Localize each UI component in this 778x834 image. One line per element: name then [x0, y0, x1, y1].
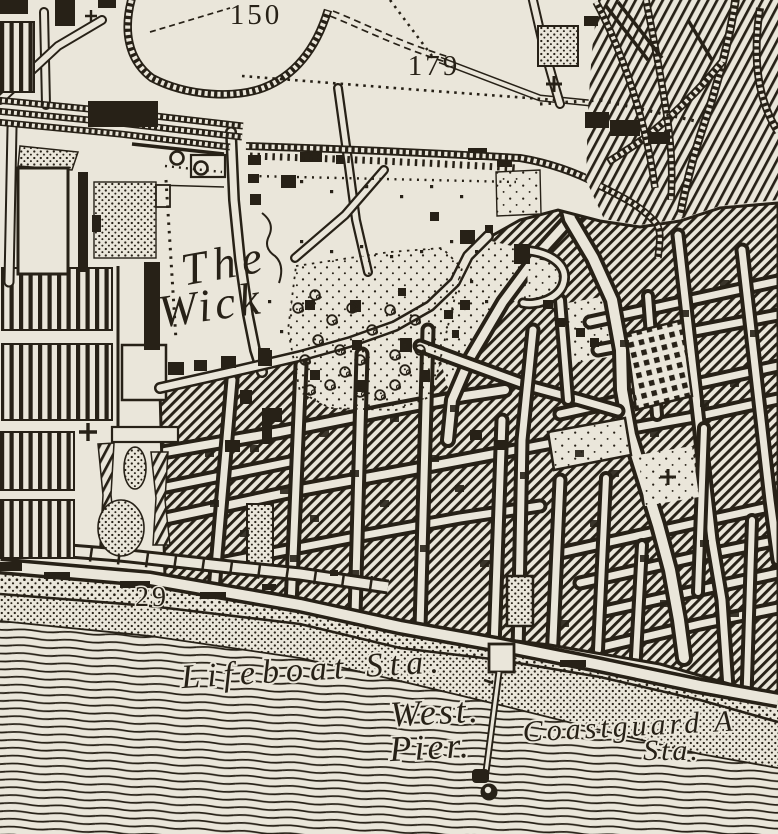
svg-text:150: 150 — [230, 0, 283, 31]
svg-text:Sta.: Sta. — [643, 734, 701, 767]
svg-text:29: 29 — [135, 582, 169, 613]
svg-text:179: 179 — [408, 50, 461, 82]
svg-text:Pier.: Pier. — [387, 725, 472, 769]
